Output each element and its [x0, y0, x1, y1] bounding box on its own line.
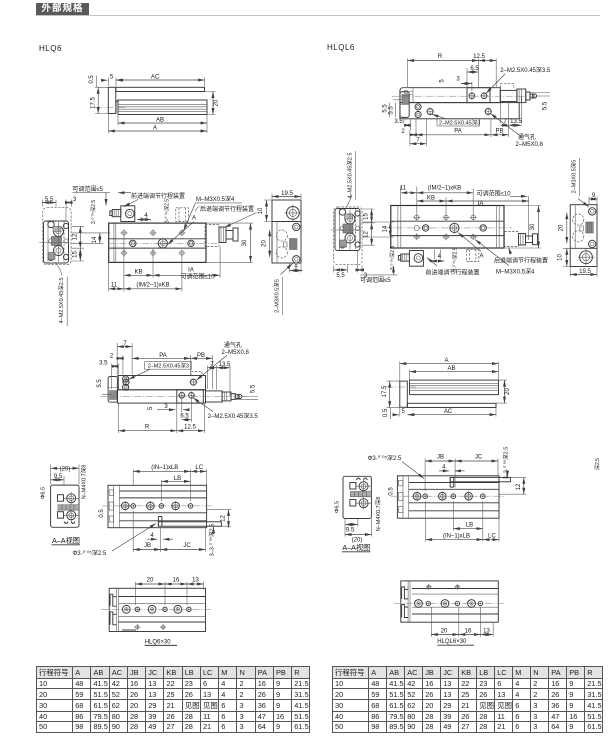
svg-text:9: 9	[592, 193, 596, 199]
svg-text:0.5: 0.5	[89, 75, 95, 84]
svg-text:3˖⁰˙⁰⁵深2.5: 3˖⁰˙⁰⁵深2.5	[90, 200, 97, 224]
svg-text:A: A	[480, 254, 484, 260]
svg-text:后退端调节行程装置: 后退端调节行程装置	[200, 205, 254, 213]
svg-text:JC: JC	[183, 543, 191, 549]
svg-text:3: 3	[73, 197, 77, 203]
svg-text:17.5: 17.5	[91, 97, 97, 109]
svg-text:PA: PA	[454, 129, 462, 135]
svg-text:19.5: 19.5	[281, 191, 293, 197]
svg-text:(IM/2–1)xKB: (IM/2–1)xKB	[136, 282, 169, 288]
svg-text:AC: AC	[444, 409, 453, 415]
svg-text:KB: KB	[427, 195, 435, 201]
svg-text:2–M3X0.5深5: 2–M3X0.5深5	[273, 279, 281, 313]
svg-text:(IN–1)xLB: (IN–1)xLB	[443, 533, 470, 539]
svg-text:2–M5X0.8: 2–M5X0.8	[222, 350, 250, 356]
svg-text:12.5: 12.5	[184, 424, 196, 430]
svg-text:JC: JC	[475, 455, 483, 461]
svg-text:(20): (20)	[352, 538, 363, 544]
svg-text:Φ6.5: Φ6.5	[334, 501, 340, 513]
svg-text:A: A	[153, 125, 157, 131]
svg-text:12: 12	[363, 231, 369, 238]
svg-text:(IM/2–1)xKB: (IM/2–1)xKB	[428, 185, 461, 191]
svg-text:前进端调节行程装置: 前进端调节行程装置	[131, 192, 185, 200]
svg-text:R: R	[145, 424, 150, 430]
svg-text:后退端调节行程装置: 后退端调节行程装置	[494, 257, 548, 265]
svg-text:PB: PB	[197, 353, 205, 359]
svg-text:14: 14	[92, 236, 98, 243]
svg-text:(20): (20)	[60, 467, 71, 473]
svg-text:30: 30	[530, 223, 536, 230]
svg-text:3–3˖⁰˙⁰⁵深2.5: 3–3˖⁰˙⁰⁵深2.5	[208, 524, 216, 557]
svg-text:3˖⁰˙⁰⁵深2.5: 3˖⁰˙⁰⁵深2.5	[389, 246, 396, 270]
svg-text:5.5: 5.5	[543, 101, 549, 110]
svg-text:4: 4	[438, 254, 442, 260]
svg-text:AC: AC	[151, 75, 160, 81]
svg-text:AB: AB	[156, 117, 164, 123]
svg-text:15: 15	[363, 213, 369, 220]
svg-text:A: A	[192, 216, 196, 222]
svg-text:11: 11	[111, 282, 118, 288]
svg-text:5.5: 5.5	[336, 273, 345, 279]
svg-text:PA: PA	[159, 353, 167, 359]
svg-text:20: 20	[441, 628, 448, 634]
svg-text:10: 10	[258, 207, 264, 214]
svg-text:6.5: 6.5	[470, 66, 479, 72]
svg-text:KB: KB	[134, 269, 142, 275]
svg-text:9.5: 9.5	[54, 474, 63, 480]
svg-text:2–M2.5X0.45深3: 2–M2.5X0.45深3	[148, 362, 189, 370]
svg-text:2: 2	[401, 129, 405, 135]
svg-text:2–M2.5X0.45深3.5: 2–M2.5X0.45深3.5	[500, 66, 551, 74]
svg-text:HLQL6×30: HLQL6×30	[437, 639, 467, 645]
svg-text:5: 5	[110, 75, 114, 81]
svg-text:Φ6.5: Φ6.5	[41, 487, 47, 499]
svg-text:14: 14	[383, 225, 389, 232]
svg-text:7: 7	[210, 362, 214, 368]
svg-text:AB: AB	[447, 366, 455, 372]
svg-text:20: 20	[559, 224, 565, 231]
svg-text:可调范围≤5: 可调范围≤5	[360, 276, 391, 284]
svg-text:17.5: 17.5	[382, 385, 388, 397]
svg-text:R: R	[438, 54, 443, 60]
svg-text:2–M3X0.5深5: 2–M3X0.5深5	[570, 160, 578, 194]
svg-text:20: 20	[214, 99, 220, 106]
svg-text:5: 5	[402, 409, 406, 415]
svg-text:Φ3˖⁰˙⁰⁵深2.5: Φ3˖⁰˙⁰⁵深2.5	[368, 454, 402, 462]
svg-text:N–M4X0.7深8: N–M4X0.7深8	[374, 497, 382, 532]
svg-text:3–3˖⁰˙⁰⁵深2.5: 3–3˖⁰˙⁰⁵深2.5	[502, 447, 510, 480]
svg-text:4–M2.5X0.45深2.5: 4–M2.5X0.45深2.5	[57, 278, 65, 324]
svg-text:4: 4	[150, 533, 154, 539]
svg-text:M–M3X0.5深4: M–M3X0.5深4	[196, 195, 235, 203]
svg-text:15: 15	[73, 251, 79, 258]
svg-text:12.5: 12.5	[473, 54, 485, 60]
svg-text:16: 16	[465, 628, 472, 634]
svg-text:3.5: 3.5	[394, 119, 403, 125]
svg-text:5: 5	[440, 79, 446, 83]
svg-text:9: 9	[294, 265, 298, 271]
svg-text:4: 4	[144, 213, 148, 219]
svg-text:LC: LC	[195, 465, 203, 471]
svg-text:20: 20	[147, 578, 154, 584]
svg-text:10: 10	[558, 254, 564, 261]
svg-text:12: 12	[516, 483, 522, 490]
svg-text:3.5: 3.5	[99, 361, 108, 367]
svg-text:19.5: 19.5	[579, 269, 591, 275]
svg-text:可调范围≤10: 可调范围≤10	[181, 273, 216, 281]
svg-text:13.5: 13.5	[510, 119, 522, 125]
svg-text:0.5: 0.5	[99, 509, 105, 518]
svg-text:13.5: 13.5	[219, 362, 231, 368]
svg-text:16: 16	[173, 578, 180, 584]
svg-text:0.5: 0.5	[383, 408, 389, 417]
svg-text:5.5: 5.5	[45, 197, 54, 203]
svg-text:2–M2.5X0.45深3.5: 2–M2.5X0.45深3.5	[208, 412, 259, 420]
svg-text:3˖⁰˙⁰⁵深2.5: 3˖⁰˙⁰⁵深2.5	[164, 199, 171, 223]
svg-text:20: 20	[505, 388, 511, 395]
svg-text:2–M5X0.8: 2–M5X0.8	[516, 142, 544, 148]
svg-text:30: 30	[242, 239, 248, 246]
svg-text:2–M2.5X0.45深3: 2–M2.5X0.45深3	[439, 119, 480, 127]
svg-text:7: 7	[416, 137, 420, 143]
svg-text:5.5: 5.5	[251, 384, 257, 393]
svg-text:JB: JB	[437, 455, 444, 461]
svg-text:(IN–1)xLB: (IN–1)xLB	[151, 465, 178, 471]
svg-text:JB: JB	[144, 543, 151, 549]
svg-text:通气孔: 通气孔	[518, 133, 536, 141]
svg-text:HLQ6×30: HLQ6×30	[145, 640, 172, 646]
svg-text:9.5: 9.5	[346, 527, 355, 533]
svg-text:20: 20	[262, 240, 268, 247]
svg-text:通气孔: 通气孔	[224, 341, 242, 349]
svg-text:A–A视图: A–A视图	[342, 543, 370, 552]
svg-text:IA: IA	[478, 201, 484, 207]
svg-text:13: 13	[483, 628, 490, 634]
svg-text:11: 11	[400, 185, 407, 191]
svg-text:3: 3	[456, 77, 460, 83]
svg-text:12: 12	[73, 233, 79, 240]
svg-text:LC: LC	[488, 533, 496, 539]
svg-text:13: 13	[192, 578, 199, 584]
svg-text:3: 3	[164, 404, 168, 410]
svg-text:可调范围≤10: 可调范围≤10	[477, 189, 512, 197]
svg-text:3˖⁰˙⁰⁵深2.5: 3˖⁰˙⁰⁵深2.5	[452, 247, 459, 271]
svg-text:Φ3˖⁰˙⁰⁵深2.5: Φ3˖⁰˙⁰⁵深2.5	[73, 549, 107, 557]
svg-text:A: A	[444, 358, 448, 364]
svg-text:2: 2	[110, 353, 114, 359]
svg-text:LB: LB	[174, 476, 181, 482]
svg-text:PB: PB	[495, 129, 503, 135]
svg-text:5.5: 5.5	[97, 379, 103, 388]
svg-text:LB: LB	[466, 522, 473, 528]
svg-text:IA: IA	[188, 268, 194, 274]
svg-text:4: 4	[442, 465, 446, 471]
svg-text:0.5: 0.5	[389, 487, 395, 496]
svg-text:12: 12	[221, 515, 227, 522]
svg-text:5: 5	[148, 406, 154, 410]
svg-text:4–M2.5X0.45深2.5: 4–M2.5X0.45深2.5	[346, 153, 354, 199]
svg-text:可调范围≤5: 可调范围≤5	[72, 185, 103, 193]
svg-text:M–M3X0.5深4: M–M3X0.5深4	[496, 268, 535, 276]
svg-text:7: 7	[123, 341, 127, 347]
svg-text:A–A视图: A–A视图	[52, 536, 80, 545]
svg-text:N–M4X0.7深8: N–M4X0.7深8	[80, 465, 88, 500]
svg-text:深2.5: 深2.5	[594, 458, 601, 470]
svg-text:6.5: 6.5	[180, 413, 189, 419]
